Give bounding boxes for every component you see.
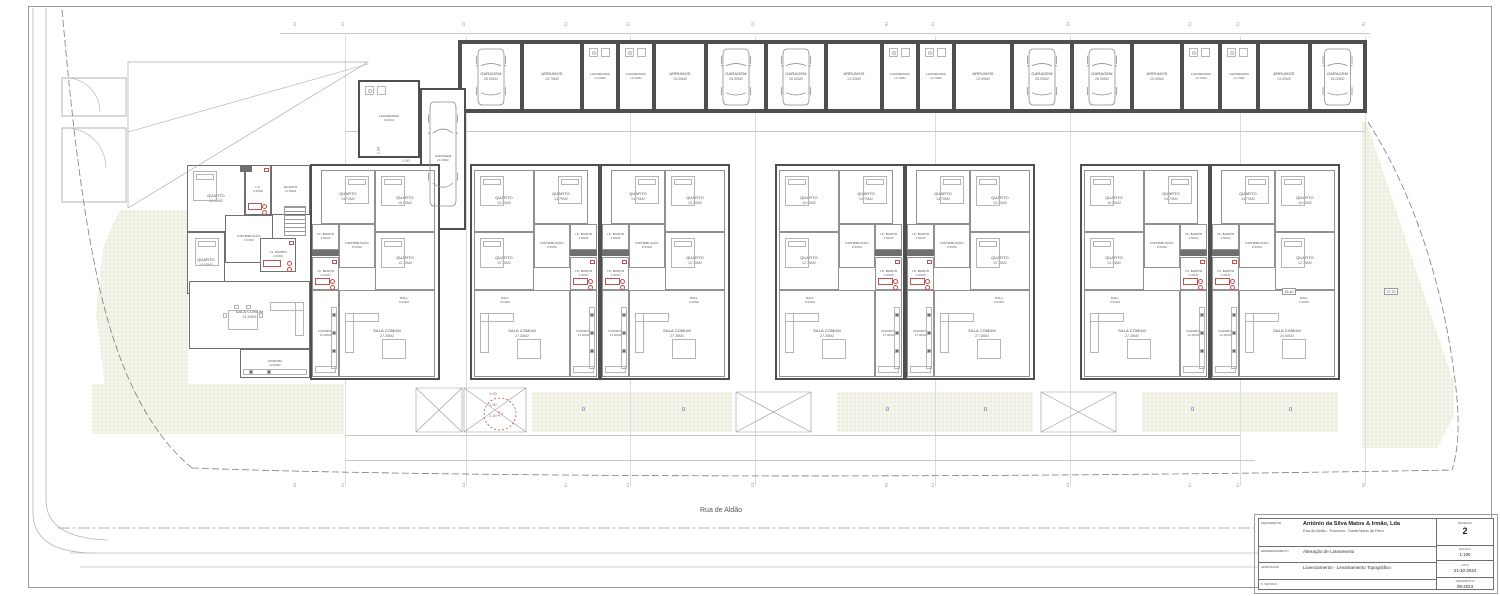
grid-marker: C1 [931, 483, 935, 487]
sink-icon [267, 370, 271, 374]
pillow-icon [979, 179, 997, 185]
room-i-s-banho: I.S. BANHO4.00M2 [260, 238, 296, 272]
requerente-address: Rua de Aldão - Travanca - Santa Maria da… [1303, 529, 1434, 533]
empreendimento-label: EMPREENDIMENTO [1259, 547, 1301, 562]
requerente-label: REQUERENTE [1259, 519, 1301, 546]
room-label: GARAGEM26.00M2 [462, 44, 520, 109]
room-i-s-banho: I.S. BANHO4.00M2 [907, 257, 934, 290]
pillow-icon [788, 179, 806, 185]
washer-icon [1201, 48, 1210, 57]
grid-marker: C3 [293, 22, 297, 26]
pillow-icon [384, 241, 402, 247]
room-label: DISTRIBUIÇÃO8.50M2 [840, 225, 874, 267]
desenho-cell: DESENHO 2 [1437, 519, 1493, 546]
escala-value: 1:100 [1460, 552, 1471, 557]
sofa-icon [635, 313, 669, 322]
stove-icon [249, 370, 253, 374]
strip-room-arrumos: ARRUMOS13.00M2 [1258, 42, 1310, 111]
terrace-line [345, 131, 1365, 132]
bathtub-icon [315, 278, 330, 285]
fridge-icon [1232, 349, 1236, 353]
room-quarto: QUARTO12.75M2 [1275, 232, 1335, 290]
walkway-line [345, 460, 1255, 461]
grid-marker: C1 [626, 22, 630, 26]
bed-icon [381, 238, 405, 268]
sofa-icon [1245, 313, 1279, 322]
dimension-text: 1.90 [489, 391, 497, 396]
fridge-icon [895, 349, 899, 353]
licenciamento-text: Licenciamento - Levantamento Topográfico [1303, 565, 1434, 571]
room-i-s-banho: I.S. BANHO4.50M2 [875, 224, 902, 250]
data-label: DATA [1461, 563, 1468, 567]
toilet-icon [1198, 279, 1203, 284]
room-label: I.S. BANHO4.50M2 [313, 225, 338, 249]
bidet-icon [287, 267, 292, 272]
sink-icon [895, 331, 899, 335]
pillow-icon [979, 241, 997, 247]
bed-icon [785, 176, 809, 206]
strip-room-arrumos: ARRUMOS10.00M2 [1132, 42, 1182, 111]
table-icon [672, 339, 696, 359]
strip-room-garagem: GARAGEM26.00M2 [460, 42, 522, 111]
sink-icon [927, 331, 931, 335]
washer-drum-icon [928, 51, 932, 55]
bed-icon [480, 176, 504, 206]
room-i-s-banho: I.S. BANHO4.00M2 [312, 257, 339, 290]
room-cozinha: COZINHA14.00M2 [875, 290, 902, 377]
room-distribui-o: DISTRIBUIÇÃO8.50M2 [1239, 224, 1275, 268]
escala-label: ESCALA [1459, 547, 1470, 551]
room-sala-comum: SALA COMUM27.35M2 [1084, 290, 1180, 377]
room-label: GARAGEM26.00M2 [1074, 44, 1130, 109]
title-block-row-tecnico: O TÉCNICO [1259, 580, 1436, 589]
room-label: GARAGEM26.00M2 [1312, 44, 1363, 109]
room-label: SALA COMUM27.35M2 [780, 291, 874, 376]
grid-marker: G1 [884, 22, 888, 27]
bed-icon [1090, 238, 1114, 268]
room-cozinha: COZINHA14.00M2 [602, 290, 629, 377]
chair-icon [223, 313, 227, 318]
grid-marker: C3 [293, 483, 297, 487]
grid-marker: C1 [564, 483, 568, 487]
grid-marker: C3 [751, 483, 755, 487]
room-label: I.S. BANHO4.50M2 [876, 225, 901, 249]
room-label: GARAGEM26.00M2 [768, 44, 824, 109]
dimension-text: 1.20 [489, 413, 497, 418]
room-quarto: QUARTO15.00M2 [779, 170, 839, 232]
washer-drum-icon [592, 51, 596, 55]
room-label: SALA COMUM27.35M2 [935, 291, 1029, 376]
grid-marker: C1 [1236, 483, 1240, 487]
grid-marker: C1 [341, 22, 345, 26]
room-distribui-o: DISTRIBUIÇÃO8.50M2 [1144, 224, 1180, 268]
referencia-cell: REFERÊNCIA 09-2023 [1437, 578, 1493, 590]
sofa-icon [785, 313, 819, 322]
room-label: SALA COMUM27.35M2 [475, 291, 569, 376]
room-label: ARRUMOS13.00M2 [656, 44, 704, 109]
window [616, 378, 638, 380]
empreendimento-value: Alteração de Loteamento [1303, 549, 1434, 555]
room-distribui-o: DISTRIBUIÇÃO8.50M2 [839, 224, 875, 268]
washbasin-icon [1232, 260, 1237, 264]
room-distribui-o: DISTRIBUIÇÃO8.50M2 [339, 224, 375, 268]
table-icon [517, 339, 541, 359]
strip-room-arrumos: ARRUMOS13.00M2 [954, 42, 1012, 111]
level-marker: 35.40 [1282, 288, 1296, 295]
room-quarto: QUARTO15.00M2 [1084, 170, 1144, 232]
stove-icon [1200, 313, 1204, 317]
house-unit: QUARTO15.00M2QUARTO14.70M2DISTRIBUIÇÃO8.… [905, 164, 1035, 380]
bed-icon [976, 176, 1000, 206]
grid-marker: C3 [1066, 483, 1070, 487]
room-sala-comum: SALA COMUM27.35M2 [629, 290, 725, 377]
level-zero-marker: 0 [984, 407, 987, 413]
data-cell: DATA 21-10-2024 [1437, 561, 1493, 577]
bed-icon [671, 238, 695, 268]
window [326, 378, 348, 380]
referencia-label: REFERÊNCIA [1456, 579, 1475, 583]
toilet-icon [925, 279, 930, 284]
bed-icon [381, 176, 405, 206]
chair-icon [259, 313, 263, 318]
room-label: DISTRIBUIÇÃO8.50M2 [1240, 225, 1274, 267]
window [921, 378, 943, 380]
room-sala-comum: SALA COMUM27.35M2 [934, 290, 1030, 377]
kitchen-counter [605, 366, 626, 373]
washer-icon [889, 48, 898, 57]
strip-room-garagem: GARAGEM26.00M2 [1072, 42, 1132, 111]
window [1226, 378, 1248, 380]
washer-icon [637, 48, 646, 57]
house-unit: QUARTO15.00M2QUARTO14.70M2DISTRIBUIÇÃO8.… [1210, 164, 1340, 380]
ramp-symbol [1041, 392, 1116, 432]
hatched-triangle-line [128, 64, 368, 132]
fridge-icon [332, 349, 336, 353]
strip-room-lavandaria: LAVANDARIA12.70M2 [918, 42, 954, 111]
level-zero-marker: 0 [582, 407, 585, 413]
table-icon [822, 339, 846, 359]
kitchen-counter [1215, 366, 1236, 373]
room-label: ARRUMOS13.75M2 [524, 44, 580, 109]
pillow-icon [1248, 179, 1266, 185]
requerente-name: António da Silva Matos & Irmão, Lda [1303, 521, 1434, 528]
road-edge-left [46, 8, 108, 540]
pillow-icon [348, 179, 366, 185]
grid-marker: C3 [1066, 22, 1070, 26]
wardrobe [602, 250, 629, 256]
sink-icon [332, 331, 336, 335]
pillow-icon [674, 179, 692, 185]
grid-marker: C1 [626, 483, 630, 487]
level-marker: 37.20 [1384, 288, 1398, 295]
sink-icon [1232, 331, 1236, 335]
room-label: I.S. BANHO4.50M2 [603, 225, 628, 249]
window [1270, 378, 1292, 380]
strip-room-garagem: GARAGEM26.00M2 [766, 42, 826, 111]
wardrobe [570, 250, 597, 256]
room-i-s-banho: I.S. BANHO4.00M2 [1180, 257, 1207, 290]
house-unit: QUARTO15.00M2QUARTO14.70M2DISTRIBUIÇÃO8.… [470, 164, 600, 380]
room-cozinha: COZINHA12.00M2 [240, 349, 310, 378]
room-quarto: QUARTO15.00M2 [1275, 170, 1335, 232]
room-distribui-o: DISTRIBUIÇÃO8.50M2 [934, 224, 970, 268]
room-quarto: QUARTO15.00M2 [375, 170, 435, 232]
title-block-row-requerente: REQUERENTE António da Silva Matos & Irmã… [1259, 519, 1436, 547]
house-unit: QUARTO15.00M2QUARTO14.70M2DISTRIBUIÇÃO8.… [600, 164, 730, 380]
room-i-s-banho: I.S. BANHO4.00M2 [875, 257, 902, 290]
kitchen-counter [315, 366, 336, 373]
level-zero-marker: 0 [1289, 407, 1292, 413]
room-i-s-banho: I.S. BANHO4.50M2 [570, 224, 597, 250]
toilet-icon [1230, 279, 1235, 284]
boundary-bottom [192, 468, 1452, 476]
sink-icon [622, 331, 626, 335]
grid-marker: G1 [1361, 22, 1365, 27]
room-label: DISTRIBUIÇÃO8.50M2 [535, 225, 569, 267]
ramp-symbol [736, 392, 811, 432]
room-i-s-banho: I.S. BANHO4.50M2 [312, 224, 339, 250]
road-edge-left [33, 8, 95, 553]
kitchen-counter [1183, 366, 1204, 373]
sofa-icon [345, 313, 379, 322]
strip-room-lavandaria: LAVANDARIA13.00M2 [582, 42, 618, 111]
strip-room-lavandaria: LAVANDARIA13.00M2 [618, 42, 654, 111]
grid-marker: C1 [1236, 22, 1240, 26]
level-zero-marker: 0 [886, 407, 889, 413]
house-unit: QUARTO15.00M2QUARTO14.70M2DISTRIBUIÇÃO8.… [1080, 164, 1210, 380]
room-label: I.S. BANHO4.50M2 [1213, 225, 1238, 249]
room-label: SALA COMUM24.50M2 [1240, 291, 1334, 376]
bed-icon [863, 176, 887, 204]
strip-room-garagem: GARAGEM26.00M2 [1310, 42, 1365, 111]
wardrobe [875, 250, 902, 256]
washer-drum-icon [1230, 51, 1234, 55]
bathtub-icon [605, 278, 620, 285]
washbasin-icon [1200, 260, 1205, 264]
tecnico-label: O TÉCNICO [1259, 580, 1301, 589]
stove-icon [1232, 313, 1236, 317]
wardrobe [907, 250, 934, 256]
sink-icon [590, 331, 594, 335]
bed-icon [1281, 176, 1305, 206]
bed-icon [345, 176, 369, 204]
garden-strip [532, 392, 732, 432]
tecnico-value [1301, 580, 1436, 589]
street-name: Rua de Aldão [700, 507, 742, 514]
bed-icon [1090, 176, 1114, 206]
strip-room-arrumos: ARRUMOS13.00M2 [826, 42, 882, 111]
washer-icon [377, 86, 386, 95]
window [795, 378, 817, 380]
room-label: DISTRIBUIÇÃO8.50M2 [630, 225, 664, 267]
toilet-icon [893, 279, 898, 284]
room-quarto: QUARTO15.00M2 [665, 170, 725, 232]
dimension-text: 1.50 [489, 402, 497, 407]
walkway-line [345, 435, 1240, 436]
bed-icon [480, 238, 504, 268]
pillow-icon [384, 179, 402, 185]
room-quarto: QUARTO12.75M2 [970, 232, 1030, 290]
strip-room-garagem: GARAGEM26.00M2 [706, 42, 766, 111]
room-i-s-banho: I.S. BANHO4.00M2 [570, 257, 597, 290]
referencia-value: 09-2023 [1457, 584, 1473, 589]
pillow-icon [674, 241, 692, 247]
bathtub-icon [910, 278, 925, 285]
kitchen-counter [910, 366, 931, 373]
requerente-main: António da Silva Matos & Irmão, Lda Rua … [1301, 519, 1436, 546]
room-quarto: QUARTO14.70M2 [1144, 170, 1198, 224]
room-label: ARRUMOS13.00M2 [1260, 44, 1308, 109]
room-distribui-o: DISTRIBUIÇÃO8.50M2 [534, 224, 570, 268]
washer-icon [1189, 48, 1198, 57]
washer-icon [1239, 48, 1248, 57]
bed-icon [635, 176, 659, 204]
bed-icon [976, 238, 1000, 268]
window [965, 378, 987, 380]
bed-icon [940, 176, 964, 204]
washer-icon [601, 48, 610, 57]
washer-drum-icon [1192, 51, 1196, 55]
escala-cell: ESCALA 1:100 [1437, 546, 1493, 561]
pillow-icon [943, 179, 961, 185]
room-quarto: QUARTO12.75M2 [665, 232, 725, 290]
bed-icon [785, 238, 809, 268]
washer-drum-icon [368, 89, 372, 93]
toilet-icon [330, 279, 335, 284]
fridge-icon [1200, 349, 1204, 353]
garden-strip [92, 384, 344, 434]
washbasin-icon [895, 260, 900, 264]
window [660, 378, 682, 380]
room-sala-comum: SALA COMUM27.35M2 [474, 290, 570, 377]
room-i-s-banho: I.S. BANHO4.50M2 [602, 224, 629, 250]
fridge-icon [927, 349, 931, 353]
kitchen-counter [573, 366, 594, 373]
washbasin-icon [264, 168, 269, 172]
grid-marker: G1 [884, 483, 888, 488]
toilet-icon [287, 261, 292, 266]
data-value: 21-10-2024 [1454, 568, 1476, 573]
strip-room-arrumos: ARRUMOS13.00M2 [654, 42, 706, 111]
room-quarto: QUARTO14.70M2 [1221, 170, 1275, 224]
fridge-icon [590, 349, 594, 353]
pillow-icon [483, 179, 501, 185]
room-cozinha: COZINHA14.00M2 [907, 290, 934, 377]
window [1100, 378, 1122, 380]
sink-icon [1200, 331, 1204, 335]
room-sala-comum: SALA COMUM24.50M2 [1239, 290, 1335, 377]
desenho-value: 2 [1462, 526, 1467, 536]
pillow-icon [1284, 241, 1302, 247]
grid-marker: C3 [462, 483, 466, 487]
empreendimento-main: Alteração de Loteamento [1301, 547, 1436, 562]
washbasin-icon [332, 260, 337, 264]
strip-room-garagem: GARAGEM26.00M2 [1012, 42, 1072, 111]
table-icon [1282, 339, 1306, 359]
dining-table-icon [228, 310, 258, 330]
strip-room-lavandaria: LAVANDARIA12.70M2 [1220, 42, 1258, 111]
pillow-icon [198, 241, 216, 247]
title-block-row-empreendimento: EMPREENDIMENTO Alteração de Loteamento [1259, 547, 1436, 563]
kitchen-counter [878, 366, 899, 373]
grid-marker: C1 [1188, 483, 1192, 487]
dimension-text: 2.98 [375, 147, 380, 155]
sofa-icon [480, 313, 514, 322]
bathtub-icon [248, 203, 262, 210]
grid-marker: C1 [931, 22, 935, 26]
pillow-icon [483, 241, 501, 247]
title-block: REQUERENTE António da Silva Matos & Irmã… [1258, 518, 1494, 590]
pillow-icon [1093, 241, 1111, 247]
stove-icon [622, 313, 626, 317]
drawing-sheet: GARAGEM26.00M2ARRUMOS13.75M2LAVANDARIA13… [0, 0, 1500, 596]
washbasin-icon [289, 241, 294, 245]
bed-icon [1281, 238, 1305, 268]
sofa-icon [295, 302, 304, 336]
room-label: SALA COMUM27.35M2 [340, 291, 434, 376]
strip-room-arrumos: ARRUMOS13.75M2 [522, 42, 582, 111]
wardrobe [240, 166, 252, 172]
lane-line [280, 33, 1370, 34]
table-icon [382, 339, 406, 359]
fridge-icon [622, 349, 626, 353]
room-label: ARRUMOS13.00M2 [956, 44, 1010, 109]
room-quarto: QUARTO12.75M2 [779, 232, 839, 290]
stairs [284, 206, 306, 236]
room-sala-comum: SALA COMUM21.50M2 [189, 281, 310, 349]
grid-marker: C1 [1188, 22, 1192, 26]
room-cozinha: COZINHA14.00M2 [1180, 290, 1207, 377]
table-icon [1127, 339, 1151, 359]
bathtub-icon [263, 260, 281, 267]
strip-room-lavandaria: LAVANDARIA12.70M2 [1182, 42, 1220, 111]
washer-drum-icon [892, 51, 896, 55]
chair-icon [246, 305, 251, 309]
toilet-icon [262, 204, 267, 209]
pillow-icon [788, 241, 806, 247]
room-quarto: QUARTO14.70M2 [839, 170, 893, 224]
window [490, 378, 512, 380]
gate [62, 78, 126, 202]
washer-icon [589, 48, 598, 57]
outbuilding-lavandaria: LAVANDARIA6.00M2 [358, 80, 420, 158]
ramp-symbol [416, 388, 462, 432]
room-quarto: QUARTO14.70M2 [534, 170, 588, 224]
room-quarto: QUARTO14.70M2 [611, 170, 665, 224]
room-i-s-banho: I.S. BANHO4.00M2 [602, 257, 629, 290]
room-i-s-banho: I.S. BANHO4.50M2 [1212, 224, 1239, 250]
bed-icon [1245, 176, 1269, 204]
washer-icon [901, 48, 910, 57]
room-label: DISTRIBUIÇÃO8.50M2 [1145, 225, 1179, 267]
washer-drum-icon [628, 51, 632, 55]
room-sala-comum: SALA COMUM27.35M2 [339, 290, 435, 377]
pillow-icon [196, 174, 214, 180]
window [1144, 378, 1166, 380]
washer-icon [625, 48, 634, 57]
room-label: GARAGEM26.00M2 [1014, 44, 1070, 109]
window [839, 378, 861, 380]
desenho-label: DESENHO [1458, 521, 1472, 525]
site-plan: GARAGEM26.00M2ARRUMOS13.75M2LAVANDARIA13… [0, 0, 1500, 596]
house-unit: QUARTO15.00M2QUARTO14.70M2DISTRIBUIÇÃO8.… [310, 164, 440, 380]
pillow-icon [1171, 179, 1189, 185]
washbasin-icon [927, 260, 932, 264]
title-block-row-aprovacao: APROVAÇÃO Licenciamento - Levantamento T… [1259, 563, 1436, 580]
washer-icon [1227, 48, 1236, 57]
table-icon [977, 339, 1001, 359]
stove-icon [927, 313, 931, 317]
